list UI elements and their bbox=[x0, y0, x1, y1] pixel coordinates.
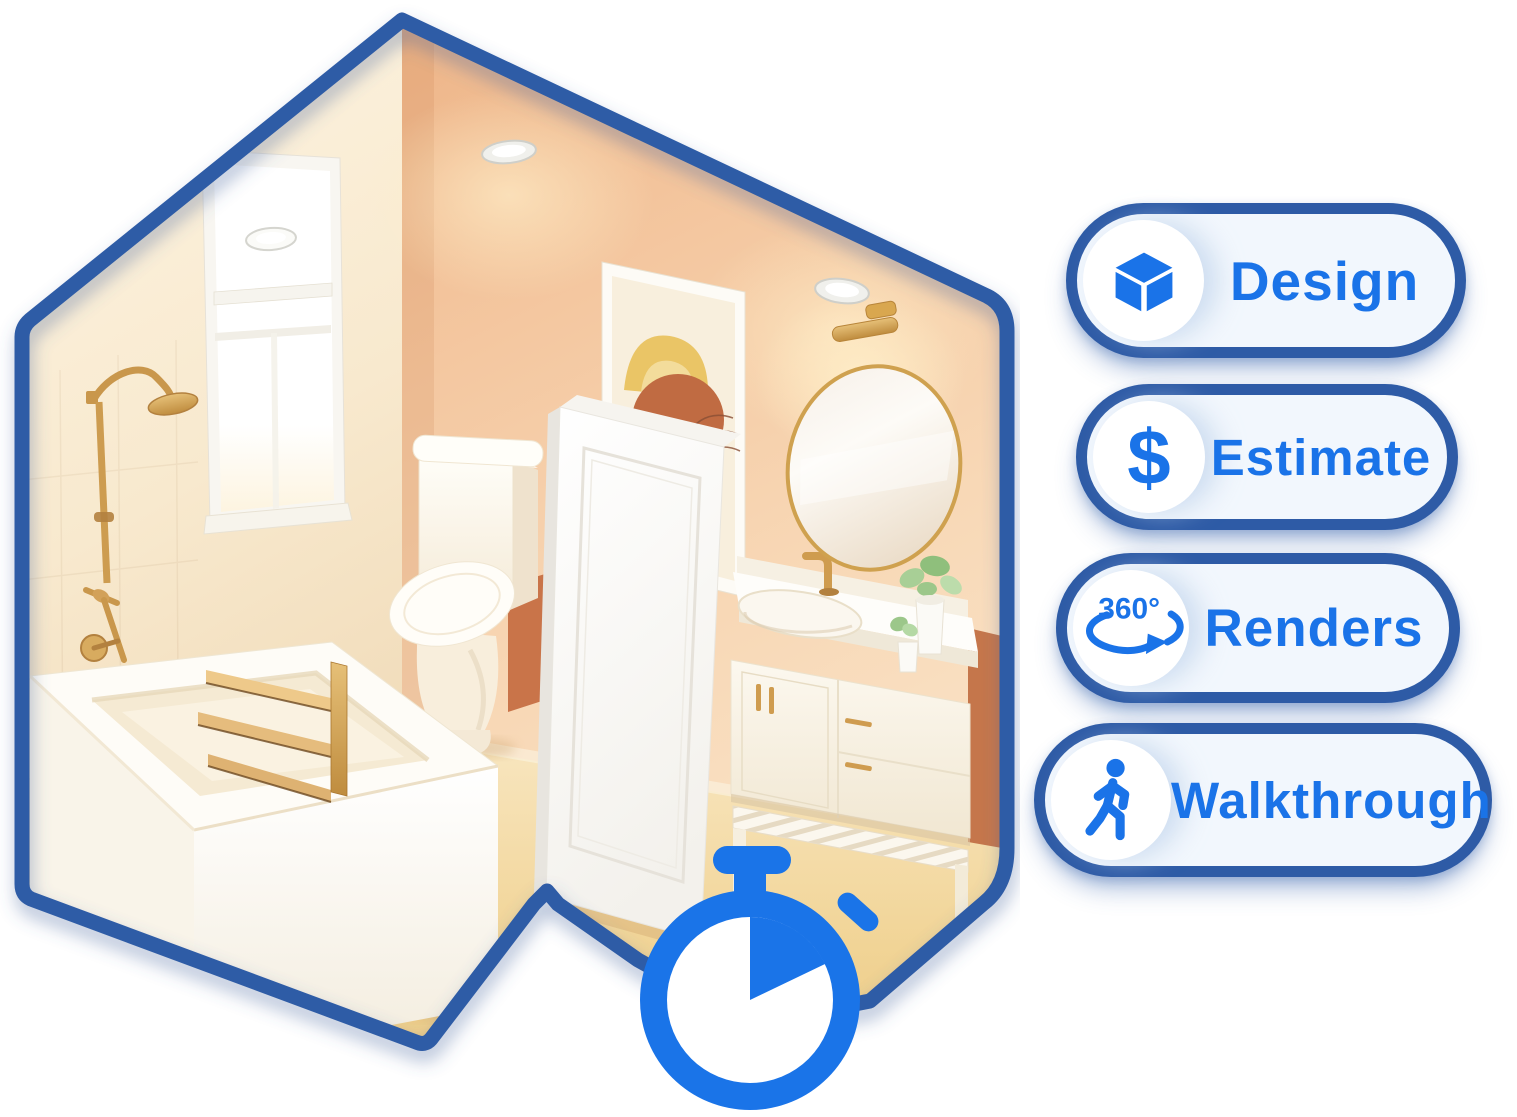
cube-3d-icon bbox=[1083, 220, 1204, 341]
feature-pill-design[interactable]: Design bbox=[1066, 203, 1466, 358]
person-walking-icon bbox=[1079, 758, 1143, 842]
feature-pill-label: Estimate bbox=[1205, 428, 1447, 487]
svg-text:360°: 360° bbox=[1098, 593, 1160, 626]
feature-pill-label: Walkthrough bbox=[1171, 771, 1502, 830]
rotation-360-icon: 360° bbox=[1073, 570, 1189, 686]
rotation-360-icon: 360° bbox=[1075, 585, 1187, 671]
feature-pill-walkthrough[interactable]: Walkthrough bbox=[1034, 723, 1492, 877]
person-walking-icon bbox=[1051, 740, 1171, 860]
feature-pill-label: Renders bbox=[1189, 598, 1449, 659]
cube-3d-icon bbox=[1111, 248, 1177, 314]
window bbox=[202, 150, 352, 534]
feature-pill-renders[interactable]: 360° Renders bbox=[1056, 553, 1460, 703]
bathroom-illustration bbox=[0, 0, 1020, 1117]
feature-pill-estimate[interactable]: $ Estimate bbox=[1076, 384, 1458, 530]
dollar-sign-icon: $ bbox=[1093, 401, 1205, 513]
hero-section: Design $ Estimate 360° Renders bbox=[0, 0, 1517, 1117]
feature-pill-label: Design bbox=[1204, 249, 1455, 313]
